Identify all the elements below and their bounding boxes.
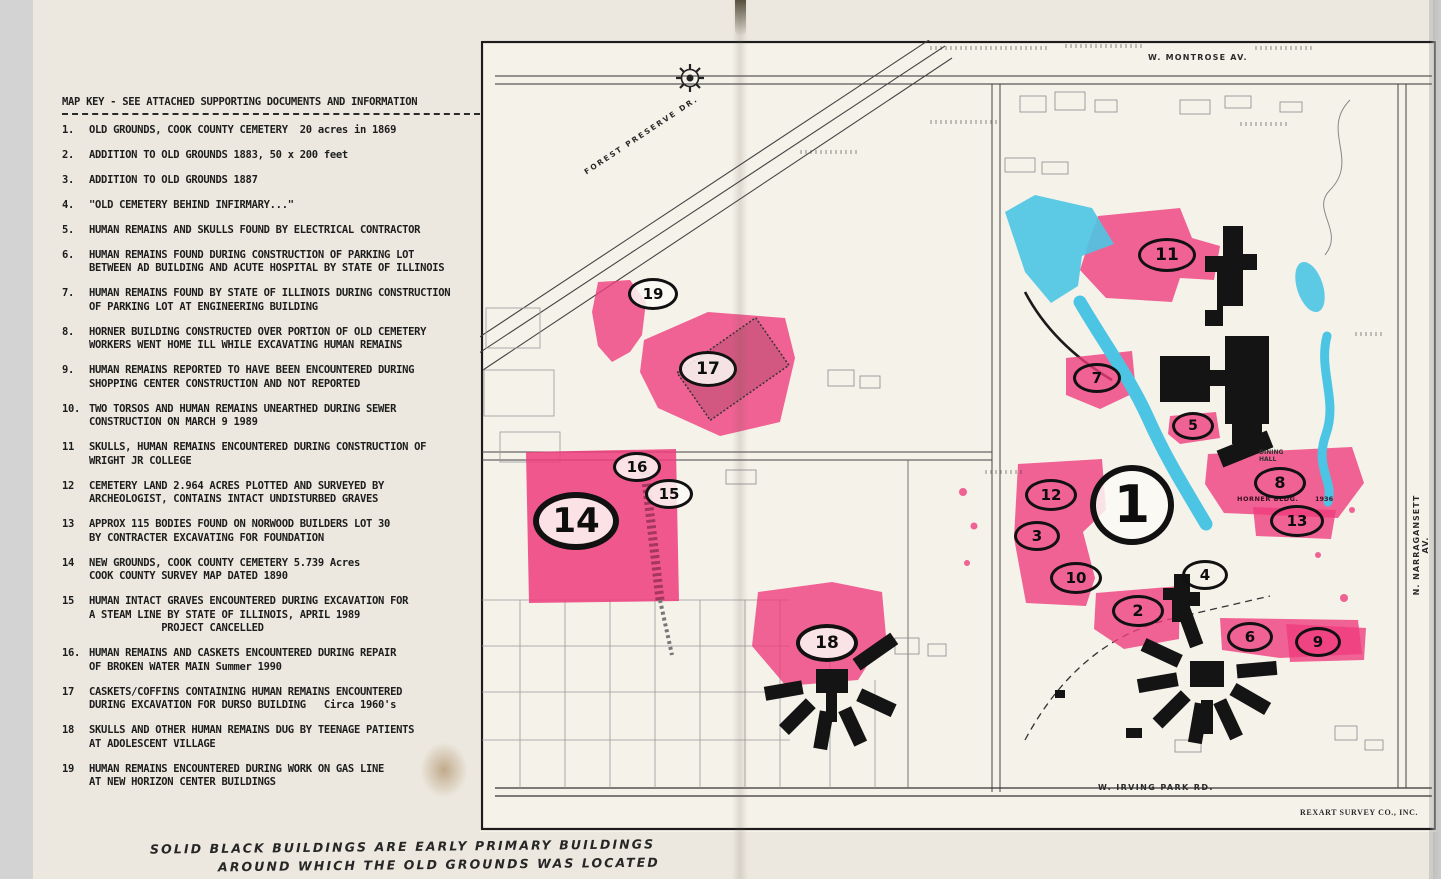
key-item-number: 11 (62, 441, 89, 468)
key-item-text: OLD GROUNDS, COOK COUNTY CEMETERY 20 acr… (89, 124, 396, 138)
site-marker-3[interactable]: 3 (1014, 521, 1060, 551)
road-network (480, 40, 1435, 829)
key-item-text: "OLD CEMETERY BEHIND INFIRMARY..." (89, 199, 294, 213)
key-item-5: 5.HUMAN REMAINS AND SKULLS FOUND BY ELEC… (62, 224, 480, 238)
key-item-17: 17CASKETS/COFFINS CONTAINING HUMAN REMAI… (62, 686, 480, 713)
survey-map-panel (480, 40, 1437, 832)
tiny-text-smudge (1065, 44, 1143, 48)
key-item-text: HUMAN REMAINS AND SKULLS FOUND BY ELECTR… (89, 224, 420, 238)
site-marker-19[interactable]: 19 (628, 278, 678, 310)
key-item-number: 10. (62, 403, 89, 430)
street-label-narragansett: N. NARRAGANSETT AV. (1412, 490, 1430, 600)
key-item-text: NEW GROUNDS, COOK COUNTY CEMETERY 5.739 … (89, 557, 360, 584)
page-fold-shadow (735, 0, 746, 36)
site-marker-10[interactable]: 10 (1050, 562, 1102, 594)
right-page-edge (1429, 0, 1441, 879)
key-item-number: 15 (62, 595, 89, 636)
key-item-text: ADDITION TO OLD GROUNDS 1883, 50 x 200 f… (89, 149, 348, 163)
key-item-3: 3.ADDITION TO OLD GROUNDS 1887 (62, 174, 480, 188)
key-item-12: 12CEMETERY LAND 2.964 ACRES PLOTTED AND … (62, 480, 480, 507)
key-item-9: 9.HUMAN REMAINS REPORTED TO HAVE BEEN EN… (62, 364, 480, 391)
key-item-number: 19 (62, 763, 89, 790)
key-item-18: 18SKULLS AND OTHER HUMAN REMAINS DUG BY … (62, 724, 480, 751)
key-item-number: 17 (62, 686, 89, 713)
key-item-number: 13 (62, 518, 89, 545)
key-item-number: 18 (62, 724, 89, 751)
key-item-text: HUMAN REMAINS AND CASKETS ENCOUNTERED DU… (89, 647, 396, 674)
key-item-11: 11SKULLS, HUMAN REMAINS ENCOUNTERED DURI… (62, 441, 480, 468)
site-marker-2[interactable]: 2 (1112, 595, 1164, 627)
key-item-text: HUMAN REMAINS FOUND BY STATE OF ILLINOIS… (89, 287, 450, 314)
street-label-montrose: W. MONTROSE AV. (1148, 53, 1248, 62)
key-item-13: 13APPROX 115 BODIES FOUND ON NORWOOD BUI… (62, 518, 480, 545)
key-item-text: HUMAN REMAINS REPORTED TO HAVE BEEN ENCO… (89, 364, 414, 391)
key-item-number: 8. (62, 326, 89, 353)
site-marker-9[interactable]: 9 (1295, 627, 1341, 657)
site-marker-16[interactable]: 16 (613, 452, 661, 482)
site-marker-17[interactable]: 17 (679, 351, 737, 387)
key-item-number: 1. (62, 124, 89, 138)
site-marker-18[interactable]: 18 (796, 624, 858, 662)
key-item-text: CEMETERY LAND 2.964 ACRES PLOTTED AND SU… (89, 480, 384, 507)
compass-rose-icon (676, 64, 704, 92)
map-graphic (480, 40, 1437, 832)
map-key-title: MAP KEY - SEE ATTACHED SUPPORTING DOCUME… (62, 96, 480, 115)
site-marker-4[interactable]: 4 (1182, 560, 1228, 590)
key-item-text: TWO TORSOS AND HUMAN REMAINS UNEARTHED D… (89, 403, 396, 430)
key-item-text: HUMAN INTACT GRAVES ENCOUNTERED DURING E… (89, 595, 408, 636)
key-item-6: 6.HUMAN REMAINS FOUND DURING CONSTRUCTIO… (62, 249, 480, 276)
key-item-10: 10.TWO TORSOS AND HUMAN REMAINS UNEARTHE… (62, 403, 480, 430)
key-item-number: 12 (62, 480, 89, 507)
key-item-text: ADDITION TO OLD GROUNDS 1887 (89, 174, 258, 188)
key-item-text: HUMAN REMAINS ENCOUNTERED DURING WORK ON… (89, 763, 384, 790)
key-item-text: CASKETS/COFFINS CONTAINING HUMAN REMAINS… (89, 686, 402, 713)
key-item-text: HUMAN REMAINS FOUND DURING CONSTRUCTION … (89, 249, 444, 276)
site-marker-7[interactable]: 7 (1073, 363, 1121, 393)
tiny-text-smudge (930, 46, 1050, 50)
key-item-number: 2. (62, 149, 89, 163)
key-item-number: 14 (62, 557, 89, 584)
tiny-text-smudge (1240, 122, 1290, 126)
tiny-text-smudge (1355, 332, 1385, 336)
key-item-4: 4."OLD CEMETERY BEHIND INFIRMARY..." (62, 199, 480, 213)
key-item-text: SKULLS AND OTHER HUMAN REMAINS DUG BY TE… (89, 724, 414, 751)
key-item-15: 15HUMAN INTACT GRAVES ENCOUNTERED DURING… (62, 595, 480, 636)
site-marker-6[interactable]: 6 (1227, 622, 1273, 652)
tiny-text-smudge (1255, 46, 1315, 50)
key-item-text: SKULLS, HUMAN REMAINS ENCOUNTERED DURING… (89, 441, 426, 468)
street-label-irving-park: W. IRVING PARK RD. (1098, 783, 1214, 792)
tiny-text-smudge (800, 150, 858, 154)
scanned-cemetery-map-document: W. MONTROSE AV. FOREST PRESERVE DR. N. N… (0, 0, 1441, 879)
key-item-7: 7.HUMAN REMAINS FOUND BY STATE OF ILLINO… (62, 287, 480, 314)
key-item-number: 3. (62, 174, 89, 188)
tiny-text-smudge (985, 470, 1025, 474)
map-key-panel: MAP KEY - SEE ATTACHED SUPPORTING DOCUME… (62, 96, 480, 801)
key-item-2: 2.ADDITION TO OLD GROUNDS 1883, 50 x 200… (62, 149, 480, 163)
key-item-14: 14NEW GROUNDS, COOK COUNTY CEMETERY 5.73… (62, 557, 480, 584)
site-marker-13[interactable]: 13 (1270, 505, 1324, 537)
site-marker-1[interactable]: 1 (1090, 465, 1174, 545)
paper-stain (420, 742, 468, 798)
page-fold-crease (732, 0, 748, 879)
key-item-19: 19HUMAN REMAINS ENCOUNTERED DURING WORK … (62, 763, 480, 790)
site-marker-12[interactable]: 12 (1025, 479, 1077, 511)
key-item-number: 9. (62, 364, 89, 391)
site-marker-8[interactable]: 8 (1254, 467, 1306, 499)
key-item-1: 1.OLD GROUNDS, COOK COUNTY CEMETERY 20 a… (62, 124, 480, 138)
key-item-text: HORNER BUILDING CONSTRUCTED OVER PORTION… (89, 326, 426, 353)
key-item-number: 4. (62, 199, 89, 213)
site-marker-5[interactable]: 5 (1172, 412, 1214, 440)
key-item-number: 16. (62, 647, 89, 674)
site-marker-11[interactable]: 11 (1138, 238, 1196, 272)
key-item-16: 16.HUMAN REMAINS AND CASKETS ENCOUNTERED… (62, 647, 480, 674)
key-item-number: 6. (62, 249, 89, 276)
key-item-number: 5. (62, 224, 89, 238)
map-key-items: 1.OLD GROUNDS, COOK COUNTY CEMETERY 20 a… (62, 124, 480, 790)
site-marker-14[interactable]: 14 (533, 492, 619, 550)
key-item-text: APPROX 115 BODIES FOUND ON NORWOOD BUILD… (89, 518, 390, 545)
key-item-8: 8.HORNER BUILDING CONSTRUCTED OVER PORTI… (62, 326, 480, 353)
building-label-dining-hall: DINING HALL (1259, 449, 1283, 463)
survey-company-attribution: REXART SURVEY CO., INC. (1300, 808, 1418, 817)
site-marker-15[interactable]: 15 (645, 479, 693, 509)
tiny-text-smudge (930, 120, 998, 124)
key-item-number: 7. (62, 287, 89, 314)
building-label-horner-year: 1936 (1315, 495, 1333, 503)
